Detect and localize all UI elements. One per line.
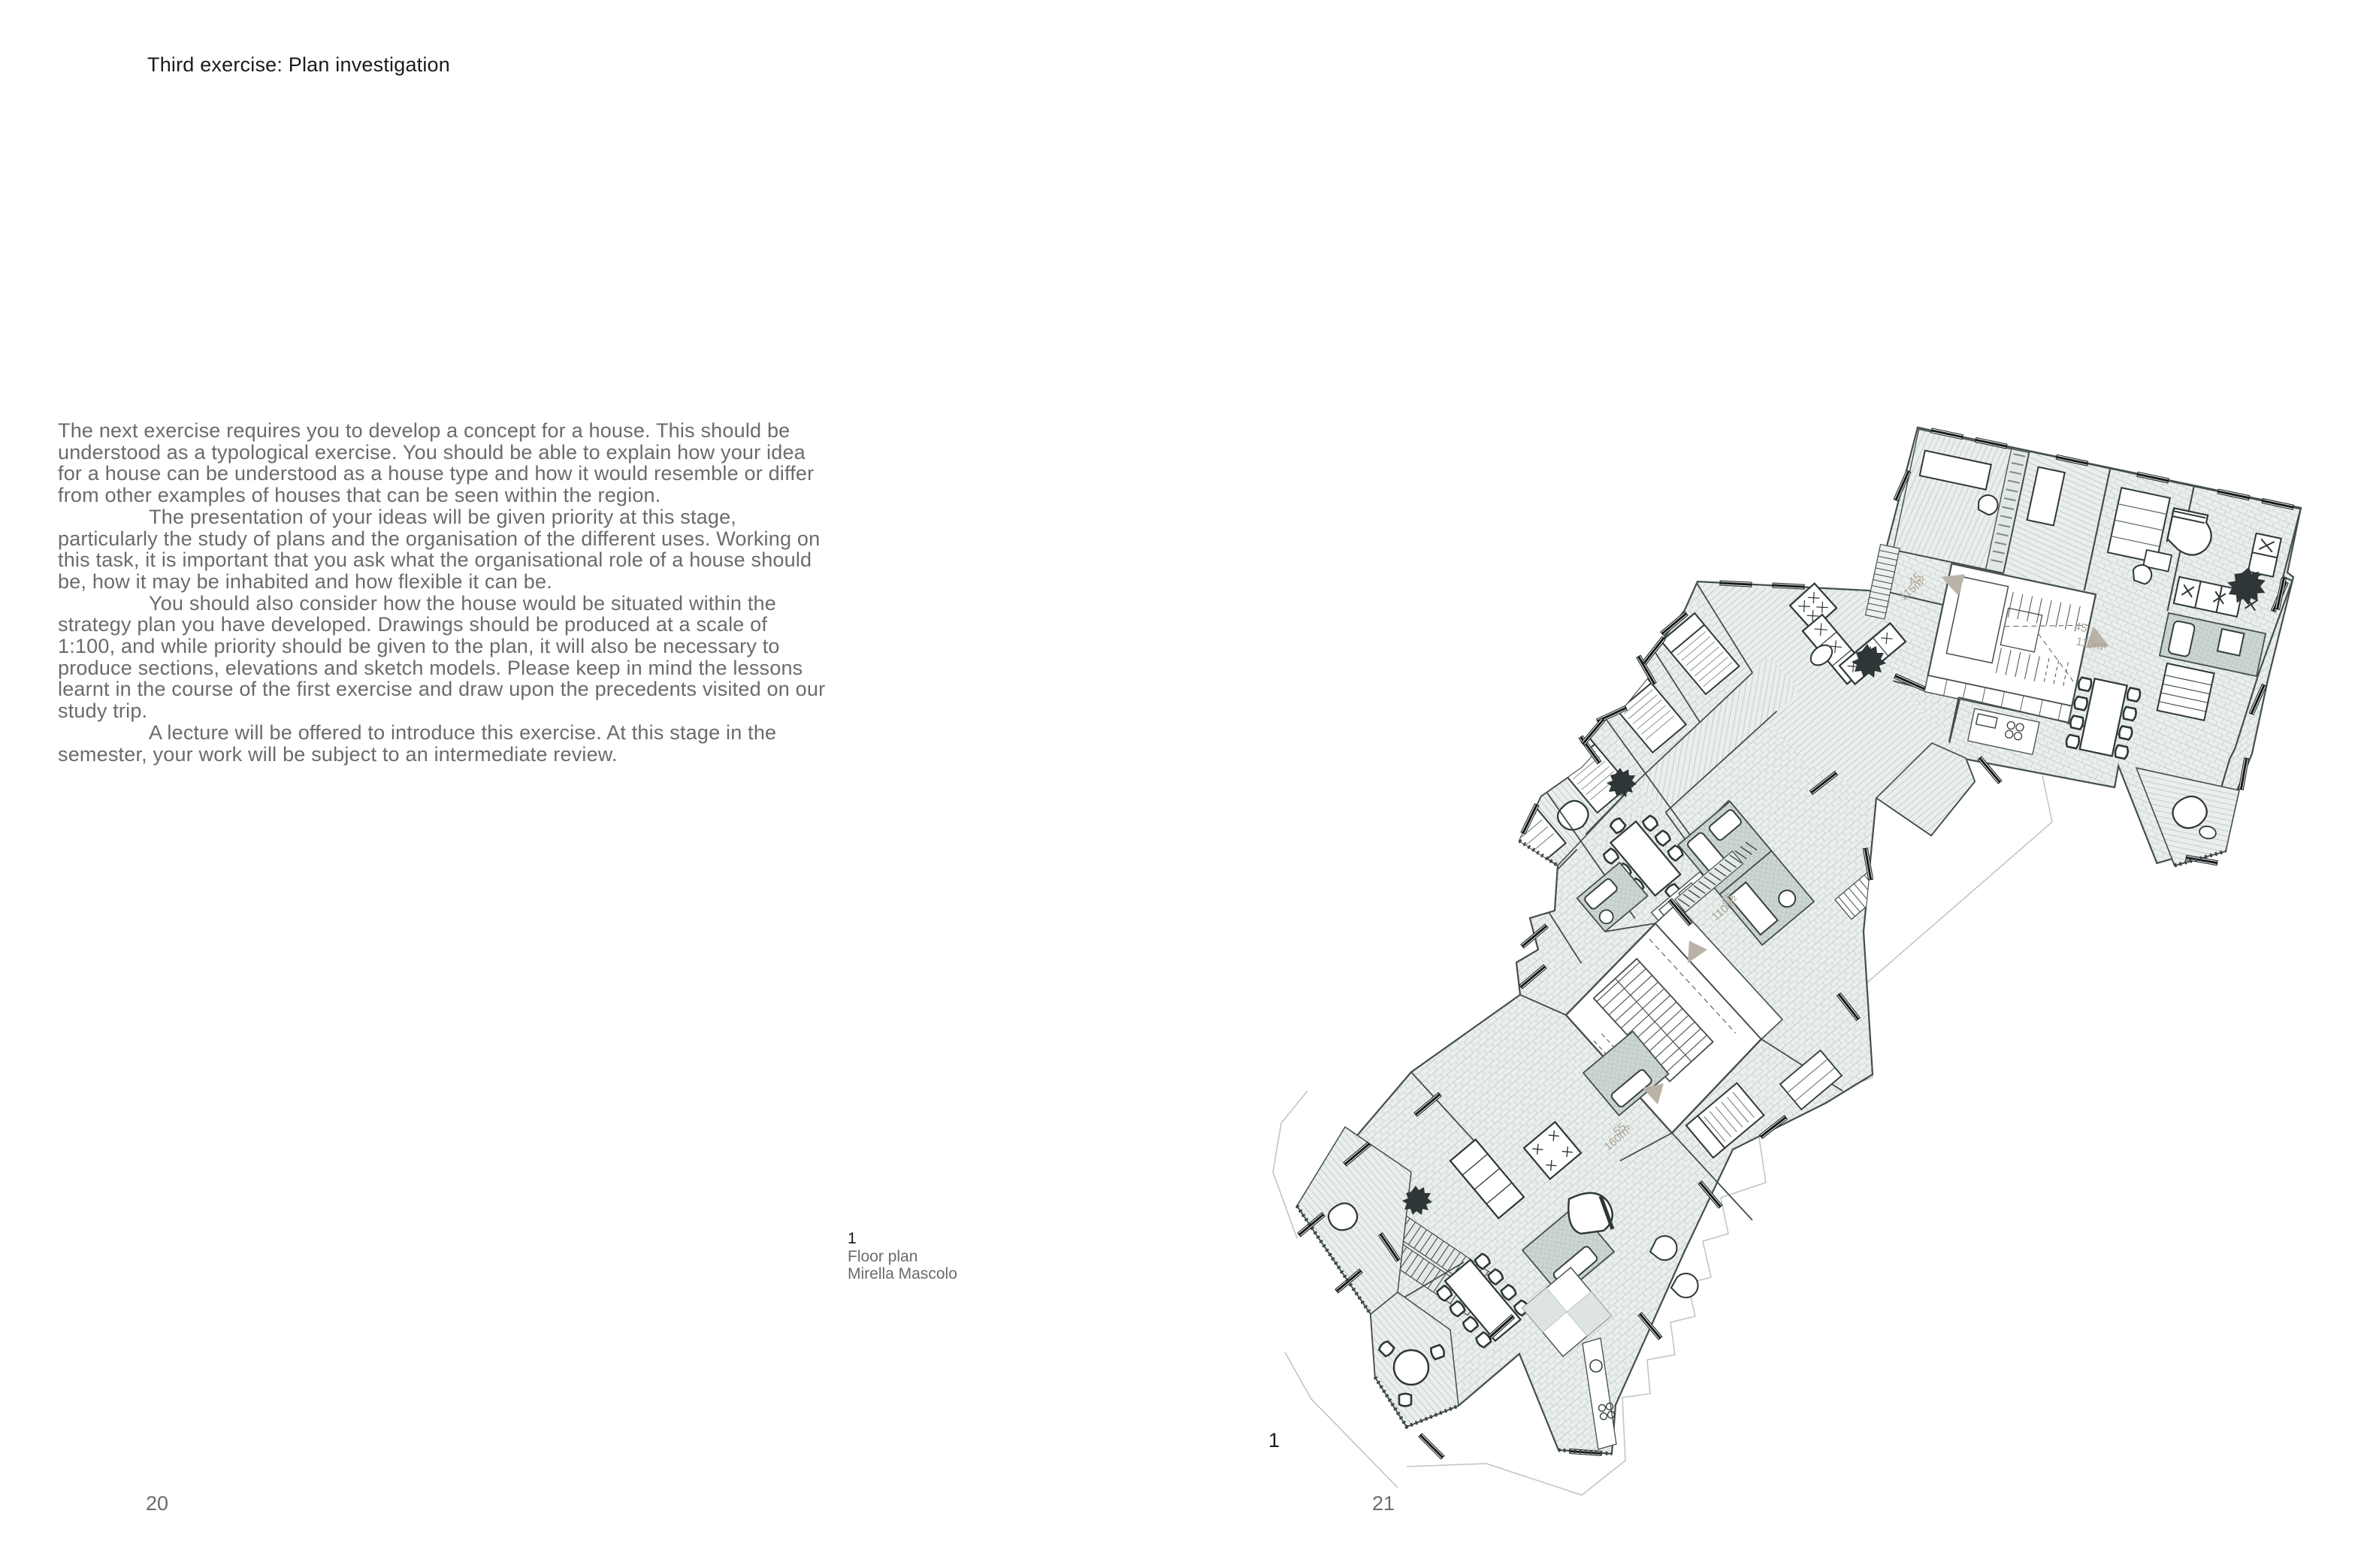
svg-text:45: 45 [2073, 620, 2088, 635]
